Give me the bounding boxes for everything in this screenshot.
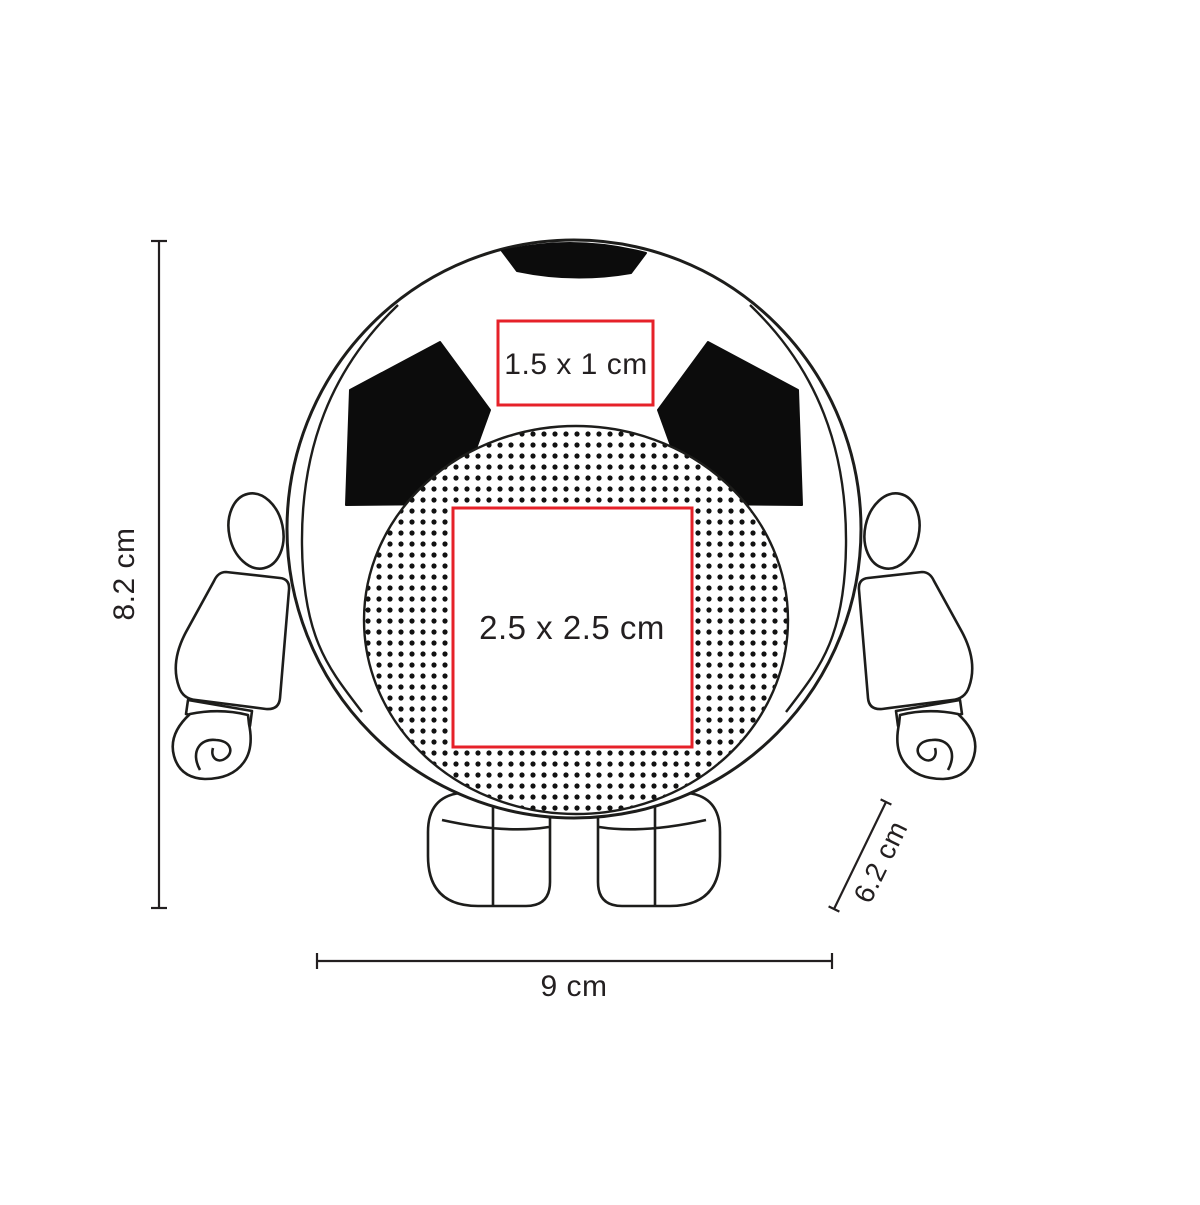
top-patch (502, 243, 646, 278)
right-upper-arm (859, 572, 972, 709)
left-shoulder (222, 488, 291, 574)
print-area-center: 2.5 x 2.5 cm (453, 508, 692, 747)
height-dimension-label: 8.2 cm (108, 527, 141, 620)
print-area-center-label: 2.5 x 2.5 cm (479, 609, 665, 646)
width-dimension-label: 9 cm (540, 970, 607, 1003)
print-area-top-label: 1.5 x 1 cm (504, 348, 647, 381)
left-hand (173, 711, 251, 779)
right-hand (897, 711, 975, 779)
diagram-canvas: 1.5 x 1 cm 2.5 x 2.5 cm 8.2 cm 9 cm 6.2 … (0, 0, 1200, 1200)
product-dimension-diagram: 1.5 x 1 cm 2.5 x 2.5 cm 8.2 cm 9 cm 6.2 … (0, 0, 1200, 1200)
left-upper-arm (176, 572, 289, 709)
height-dimension (151, 241, 167, 908)
print-area-top: 1.5 x 1 cm (498, 321, 653, 405)
right-shoulder (858, 488, 927, 574)
width-dimension (317, 953, 832, 969)
